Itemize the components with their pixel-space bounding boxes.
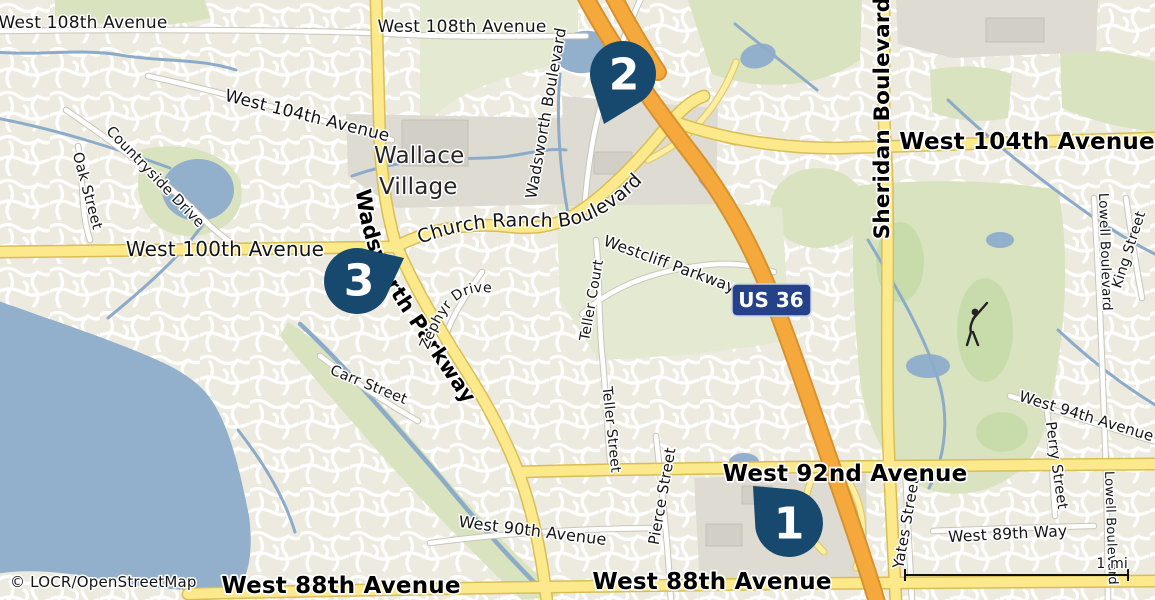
place-label-village: Village bbox=[379, 174, 458, 200]
road-label-west-108th-center: West 108th Avenue bbox=[377, 17, 546, 37]
road-label-west-104th-right: West 104th Avenue bbox=[899, 129, 1155, 155]
road-label-west-100th: West 100th Avenue bbox=[126, 237, 324, 261]
scale-bar-label: 1 mi bbox=[1096, 556, 1128, 572]
road-label-west-88th-right: West 88th Avenue bbox=[592, 569, 831, 595]
pond bbox=[986, 232, 1014, 248]
marker-2-label: 2 bbox=[609, 50, 640, 101]
place-label-wallace: Wallace bbox=[374, 143, 464, 169]
road-label-west-92nd: West 92nd Avenue bbox=[723, 461, 968, 487]
road-label-sheridan-boulevard: Sheridan Boulevard bbox=[870, 0, 895, 239]
attribution: © LOCR/OpenStreetMap bbox=[10, 573, 197, 591]
road-label-west-108th-left: West 108th Avenue bbox=[0, 13, 168, 33]
route-shield-us36: US 36 bbox=[732, 284, 811, 316]
pond bbox=[906, 354, 950, 378]
marker-1-label: 1 bbox=[774, 499, 805, 550]
map-canvas: West 108th Avenue West 108th Avenue West… bbox=[0, 0, 1155, 600]
route-shield-label: US 36 bbox=[738, 288, 803, 312]
marker-3-label: 3 bbox=[344, 256, 375, 307]
map-container: West 108th Avenue West 108th Avenue West… bbox=[0, 0, 1155, 600]
road-label-west-88th-left: West 88th Avenue bbox=[221, 573, 460, 599]
